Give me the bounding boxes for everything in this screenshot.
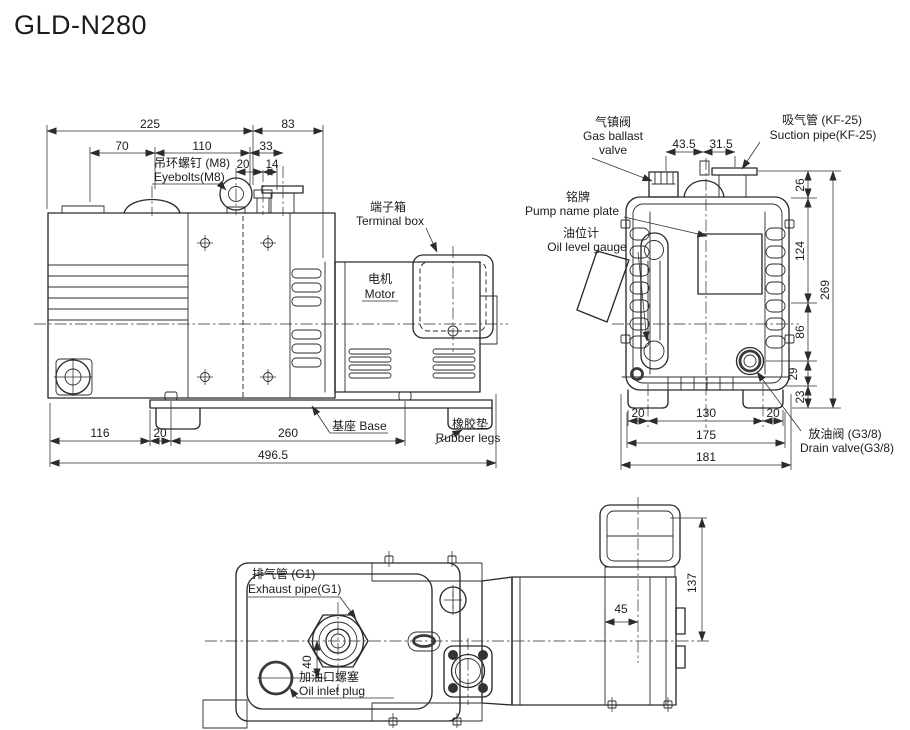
label-gas-ballast-cn: 气镇阀 — [595, 114, 631, 129]
dim-31-5: 31.5 — [709, 137, 733, 151]
dim-14: 14 — [266, 159, 279, 171]
label-terminal-box-en: Terminal box — [356, 214, 424, 228]
pump-drawing: GLD-N280 — [0, 0, 910, 730]
front-view-geometry — [577, 158, 799, 428]
front-drain-valve-shape — [737, 348, 764, 375]
label-rubber-legs-en: Rubber legs — [436, 431, 501, 445]
label-terminal-box-cn: 端子箱 — [370, 199, 406, 214]
dim-23: 23 — [795, 391, 807, 404]
label-eyebolts-en: Eyebolts(M8) — [154, 170, 225, 184]
oil-level-gauge-shape — [641, 233, 668, 369]
top-view: 40 45 137 排气管 (G1) Exhaust pipe(G1) 加油口螺… — [203, 497, 712, 728]
dome-cap-shape — [684, 181, 724, 198]
motor-shape — [335, 262, 480, 392]
label-motor-cn: 电机 — [368, 272, 392, 286]
drawing-page: GLD-N280 — [0, 0, 910, 730]
dim-496-5: 496.5 — [258, 448, 288, 462]
dim-70: 70 — [115, 139, 129, 153]
rib-slots — [292, 262, 345, 392]
dim-260: 260 — [278, 426, 298, 440]
label-motor-en: Motor — [365, 287, 396, 301]
side-view-geometry — [34, 166, 508, 429]
front-view-dimensions: 43.5 31.5 26 124 86 29 23 269 — [621, 137, 841, 470]
dim-130: 130 — [696, 406, 716, 420]
label-oil-gauge-en: Oil level gauge — [547, 240, 627, 254]
dim-137: 137 — [685, 573, 699, 593]
page-title: GLD-N280 — [14, 10, 147, 40]
dim-20-bottom: 20 — [153, 426, 167, 440]
top-view-geometry — [203, 497, 712, 728]
pump-body-shape — [48, 213, 335, 398]
dim-116: 116 — [90, 426, 109, 440]
dim-45: 45 — [614, 602, 628, 616]
lug-shape — [408, 632, 440, 651]
label-oil-gauge-cn: 油位计 — [563, 225, 599, 240]
dim-20-left: 20 — [631, 406, 645, 420]
dim-110: 110 — [192, 139, 211, 153]
label-exhaust-en: Exhaust pipe(G1) — [248, 582, 341, 596]
dim-86: 86 — [793, 325, 807, 339]
label-gas-ballast-en2: valve — [599, 143, 627, 157]
label-name-plate-en: Pump name plate — [525, 204, 619, 218]
label-gas-ballast-en1: Gas ballast — [583, 129, 644, 143]
label-oil-inlet-cn: 加油口螺塞 — [299, 669, 359, 684]
name-plate-shape — [698, 234, 762, 294]
label-drain-cn: 放油阀 (G3/8) — [808, 426, 881, 441]
side-drain-valve-shape — [54, 358, 92, 396]
label-exhaust-cn: 排气管 (G1) — [252, 566, 315, 581]
motor-vents — [349, 349, 475, 378]
front-view-labels: 气镇阀 Gas ballast valve 吸气管 (KF-25) Suctio… — [525, 112, 894, 455]
gas-ballast-shape — [649, 172, 678, 197]
suction-flange-shape — [712, 168, 757, 197]
label-name-plate-cn: 铭牌 — [566, 189, 590, 204]
cover-screws — [197, 235, 276, 385]
side-view-dimensions: 225 83 70 110 33 20 14 116 20 260 496.5 — [47, 117, 496, 468]
front-view: 43.5 31.5 26 124 86 29 23 269 — [525, 112, 894, 470]
label-suction-en: Suction pipe(KF-25) — [770, 128, 877, 142]
dim-40: 40 — [300, 655, 314, 669]
dim-175: 175 — [696, 428, 716, 442]
label-drain-en: Drain valve(G3/8) — [800, 441, 894, 455]
dim-124: 124 — [793, 241, 807, 261]
dim-225: 225 — [140, 117, 160, 131]
dim-43-5: 43.5 — [672, 137, 696, 151]
label-rubber-legs-cn: 橡胶垫 — [452, 416, 488, 431]
dim-269: 269 — [818, 280, 832, 300]
top-terminal-box-shape — [600, 505, 680, 577]
dim-20-right: 20 — [766, 406, 780, 420]
dim-33: 33 — [259, 139, 273, 153]
side-view-labels: 吊环螺钉 (M8) Eyebolts(M8) 端子箱 Terminal box … — [152, 156, 500, 445]
cooling-fins — [48, 265, 188, 320]
side-view: 225 83 70 110 33 20 14 116 20 260 496.5 … — [34, 117, 508, 468]
label-base: 基座 Base — [332, 418, 387, 433]
dim-20-top: 20 — [237, 159, 250, 171]
gauge-cover-plate-shape — [577, 251, 629, 322]
label-eyebolts-cn: 吊环螺钉 (M8) — [154, 156, 230, 170]
dim-26: 26 — [793, 178, 807, 192]
dim-29: 29 — [788, 368, 800, 381]
dim-181: 181 — [696, 450, 716, 464]
label-suction-cn: 吸气管 (KF-25) — [782, 112, 862, 127]
label-oil-inlet-en: Oil inlet plug — [299, 684, 365, 698]
dim-83: 83 — [281, 117, 295, 131]
